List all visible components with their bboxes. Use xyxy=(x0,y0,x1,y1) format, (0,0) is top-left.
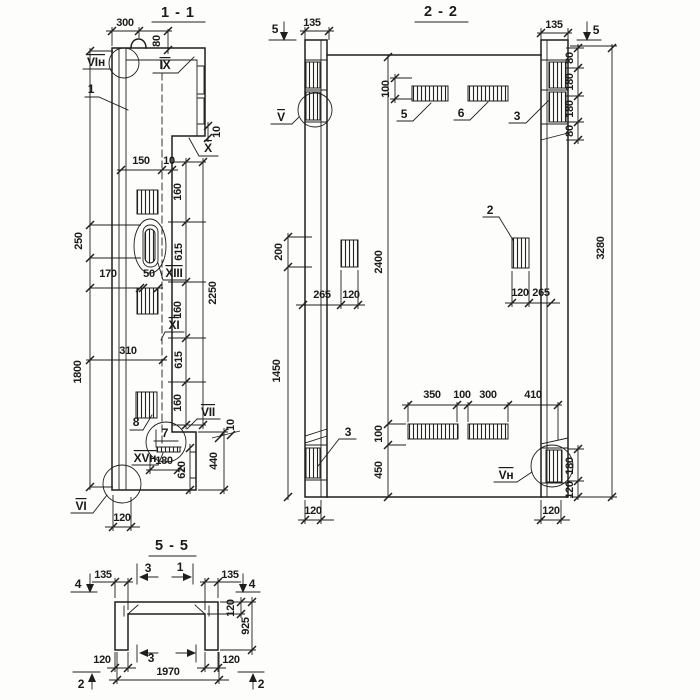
dim-265-120-left: 265 120 xyxy=(296,270,365,309)
dim-text: 120 xyxy=(222,654,240,666)
dim-text: 80 xyxy=(564,52,576,64)
cut-mark-1-top: 1 xyxy=(172,560,193,584)
dim-text: 265 xyxy=(532,287,550,299)
dim-text: 3280 xyxy=(595,236,607,259)
dim-text: 80 xyxy=(564,125,576,137)
arrow-right-icon xyxy=(187,649,196,657)
node-label-xiii: XIII xyxy=(165,266,182,280)
dim-text: 120 xyxy=(225,599,237,617)
drawing-sheet: 1 - 1 300 80 xyxy=(0,0,700,700)
dim-text: 10 xyxy=(163,155,175,167)
dim-170-50: 170 50 xyxy=(86,268,163,292)
dim-120-foot-right: 120 xyxy=(534,500,570,524)
dim-text: 300 xyxy=(116,17,134,29)
dim-120-foot-left: 120 xyxy=(298,500,334,524)
embedded-bar-6 xyxy=(468,86,508,101)
dim-text: 100 xyxy=(380,80,392,98)
dim-text: 120 xyxy=(113,512,131,524)
dim-100-top: 100 xyxy=(380,74,412,103)
dim-chain-right: 160 615 160 615 160 xyxy=(168,158,206,429)
dim-text: 80 xyxy=(151,35,163,47)
dim-text: 200 xyxy=(273,243,285,261)
dim-text: 100 xyxy=(453,389,471,401)
dim-text: 180 xyxy=(564,100,576,118)
dim-text: 120 xyxy=(342,289,360,301)
section-5-5-title: 5 - 5 xyxy=(155,538,189,554)
dims-5-5: 135 135 4 4 3 1 120 xyxy=(71,560,265,691)
arrow-left-icon xyxy=(139,649,148,657)
node-label-xi: XI xyxy=(169,318,180,332)
dim-text: 160 xyxy=(172,394,184,412)
section-2-2-title: 2 - 2 xyxy=(424,4,458,20)
dim-text: 250 xyxy=(73,232,85,250)
dim-text: 180 xyxy=(564,457,576,475)
cut-label: 1 xyxy=(177,560,184,574)
part-label-2: 2 xyxy=(487,203,494,217)
detail-circle-vi xyxy=(103,465,141,503)
embedded-plate xyxy=(137,190,158,214)
dim-text: 180 xyxy=(564,73,576,91)
node-label-ix: IX xyxy=(160,58,171,72)
cut-mark-5-left: 5 xyxy=(269,22,296,41)
part-label-3-left: 3 xyxy=(345,425,352,439)
cut-label: 5 xyxy=(272,22,279,36)
lifting-loop-top xyxy=(131,39,146,48)
part-label-5: 5 xyxy=(401,107,408,121)
dim-120-bottom-left: 120 xyxy=(93,652,136,672)
dim-text: 925 xyxy=(240,617,252,635)
part-label-8: 8 xyxy=(133,415,140,429)
dim-text: 100 xyxy=(373,425,385,443)
cut-mark-5-right: 5 xyxy=(577,22,601,41)
node-label-vin: VIн xyxy=(87,55,105,69)
node-label-x: X xyxy=(204,141,212,155)
dim-text: 10 xyxy=(211,126,223,138)
dim-chain-right-top: 80 180 180 80 xyxy=(564,44,584,144)
dim-text: 160 xyxy=(172,301,184,319)
cut-label: 4 xyxy=(249,577,256,591)
cut-label: 4 xyxy=(75,577,82,591)
part-label-1: 1 xyxy=(88,82,95,96)
cut-mark-4-left: 4 xyxy=(71,574,97,593)
dim-text: 120 xyxy=(564,481,576,499)
dim-120-thickness: 120 xyxy=(207,597,256,618)
dim-text: 135 xyxy=(303,17,321,29)
dim-text: 2250 xyxy=(207,281,219,304)
section-1-1-title: 1 - 1 xyxy=(161,5,195,21)
engineering-drawing: 1 - 1 300 80 xyxy=(0,0,700,700)
dim-text: 150 xyxy=(132,155,150,167)
node-label-v: V xyxy=(277,110,285,124)
dim-120-bottom-right: 120 xyxy=(197,652,240,672)
rib-hatch xyxy=(306,62,320,88)
dim-text: 615 xyxy=(173,351,185,369)
part-label-3-right: 3 xyxy=(514,109,521,123)
dim-text: 310 xyxy=(119,345,137,357)
dim-text: 300 xyxy=(479,389,497,401)
dim-text: 135 xyxy=(94,569,112,581)
cut-mark-2-left: 2 xyxy=(73,672,100,691)
dim-10-vii: 10 xyxy=(212,419,240,442)
dim-text: 135 xyxy=(221,569,239,581)
cut-label: 3 xyxy=(145,561,152,575)
detail-circle-vin xyxy=(109,48,139,78)
node-label-vii: VII xyxy=(201,405,215,419)
dim-120-bottom: 120 xyxy=(105,495,140,531)
arrow-up-icon xyxy=(88,673,96,682)
corner-angle-hatch xyxy=(157,447,180,452)
node-label-vi: VI xyxy=(76,499,87,513)
dim-text: 160 xyxy=(172,183,184,201)
cut-label: 2 xyxy=(258,677,265,691)
cut-mark-3-top: 3 xyxy=(137,561,158,584)
embedded-bar-5 xyxy=(412,86,448,101)
dim-10-x: 10 xyxy=(204,122,223,142)
dim-text: 1970 xyxy=(156,666,179,678)
cut-label: 5 xyxy=(593,23,600,37)
embedded-plate xyxy=(341,240,358,267)
dim-310: 310 xyxy=(86,345,167,364)
dim-text: 120 xyxy=(511,287,529,299)
rib-hatch xyxy=(546,450,562,482)
rib-hatch xyxy=(306,92,320,120)
cut-mark-3-bottom: 3 xyxy=(137,645,158,665)
dim-120-265-right: 120 265 xyxy=(505,271,560,307)
dim-3280: 3280 xyxy=(570,44,617,501)
part-label-6: 6 xyxy=(458,106,465,120)
embedded-plate-2 xyxy=(512,238,529,268)
dim-text: 440 xyxy=(208,452,220,470)
channel-outline-5-5 xyxy=(115,602,218,650)
dim-text: 10 xyxy=(225,419,237,431)
rib-hatch xyxy=(306,448,320,478)
section-1-1: 1 - 1 300 80 xyxy=(71,5,240,531)
embedded-bar xyxy=(468,424,508,439)
cut-mark-2-right: 2 xyxy=(238,672,265,691)
part-label-7: 7 xyxy=(162,426,169,440)
dim-135-right: 135 xyxy=(537,19,572,40)
dim-text: 120 xyxy=(542,505,560,517)
node-label-vn: Vн xyxy=(499,468,514,482)
cut-mark-4-right: 4 xyxy=(236,574,260,593)
dim-text: 615 xyxy=(173,243,185,261)
dim-text: 450 xyxy=(373,461,385,479)
dim-text: 50 xyxy=(143,268,155,280)
dim-text: 265 xyxy=(313,289,331,301)
arrow-left-icon xyxy=(139,573,148,581)
panel-outline-2-2 xyxy=(298,40,573,497)
dim-chain-right-bottom: 180 120 xyxy=(564,445,584,501)
lifting-loop-hatch xyxy=(145,229,155,263)
node-label-xvn: XVн xyxy=(134,451,157,465)
dim-135-left: 135 xyxy=(92,569,133,610)
arrow-right-icon xyxy=(183,573,192,581)
section-5-5: 5 - 5 135 135 4 4 3 xyxy=(71,538,265,691)
dim-text: 120 xyxy=(304,505,322,517)
section-2-2: 2 - 2 5 135 xyxy=(269,4,617,524)
dim-text: 1800 xyxy=(72,360,84,383)
dim-text: 170 xyxy=(99,268,117,280)
dim-text: 120 xyxy=(93,654,111,666)
dim-2250: 2250 xyxy=(199,158,219,429)
dim-135-left: 135 xyxy=(300,17,334,40)
dim-text: 350 xyxy=(423,389,441,401)
dim-text: 410 xyxy=(524,389,542,401)
dim-text: 620 xyxy=(176,461,188,479)
cut-mark-1-bottom xyxy=(176,645,196,662)
dim-text: 1450 xyxy=(271,359,283,382)
arrow-up-icon xyxy=(249,673,257,682)
cut-label: 2 xyxy=(78,677,85,691)
dim-text: 135 xyxy=(545,19,563,31)
embedded-bar xyxy=(408,424,458,439)
dim-text: 2400 xyxy=(373,250,385,273)
